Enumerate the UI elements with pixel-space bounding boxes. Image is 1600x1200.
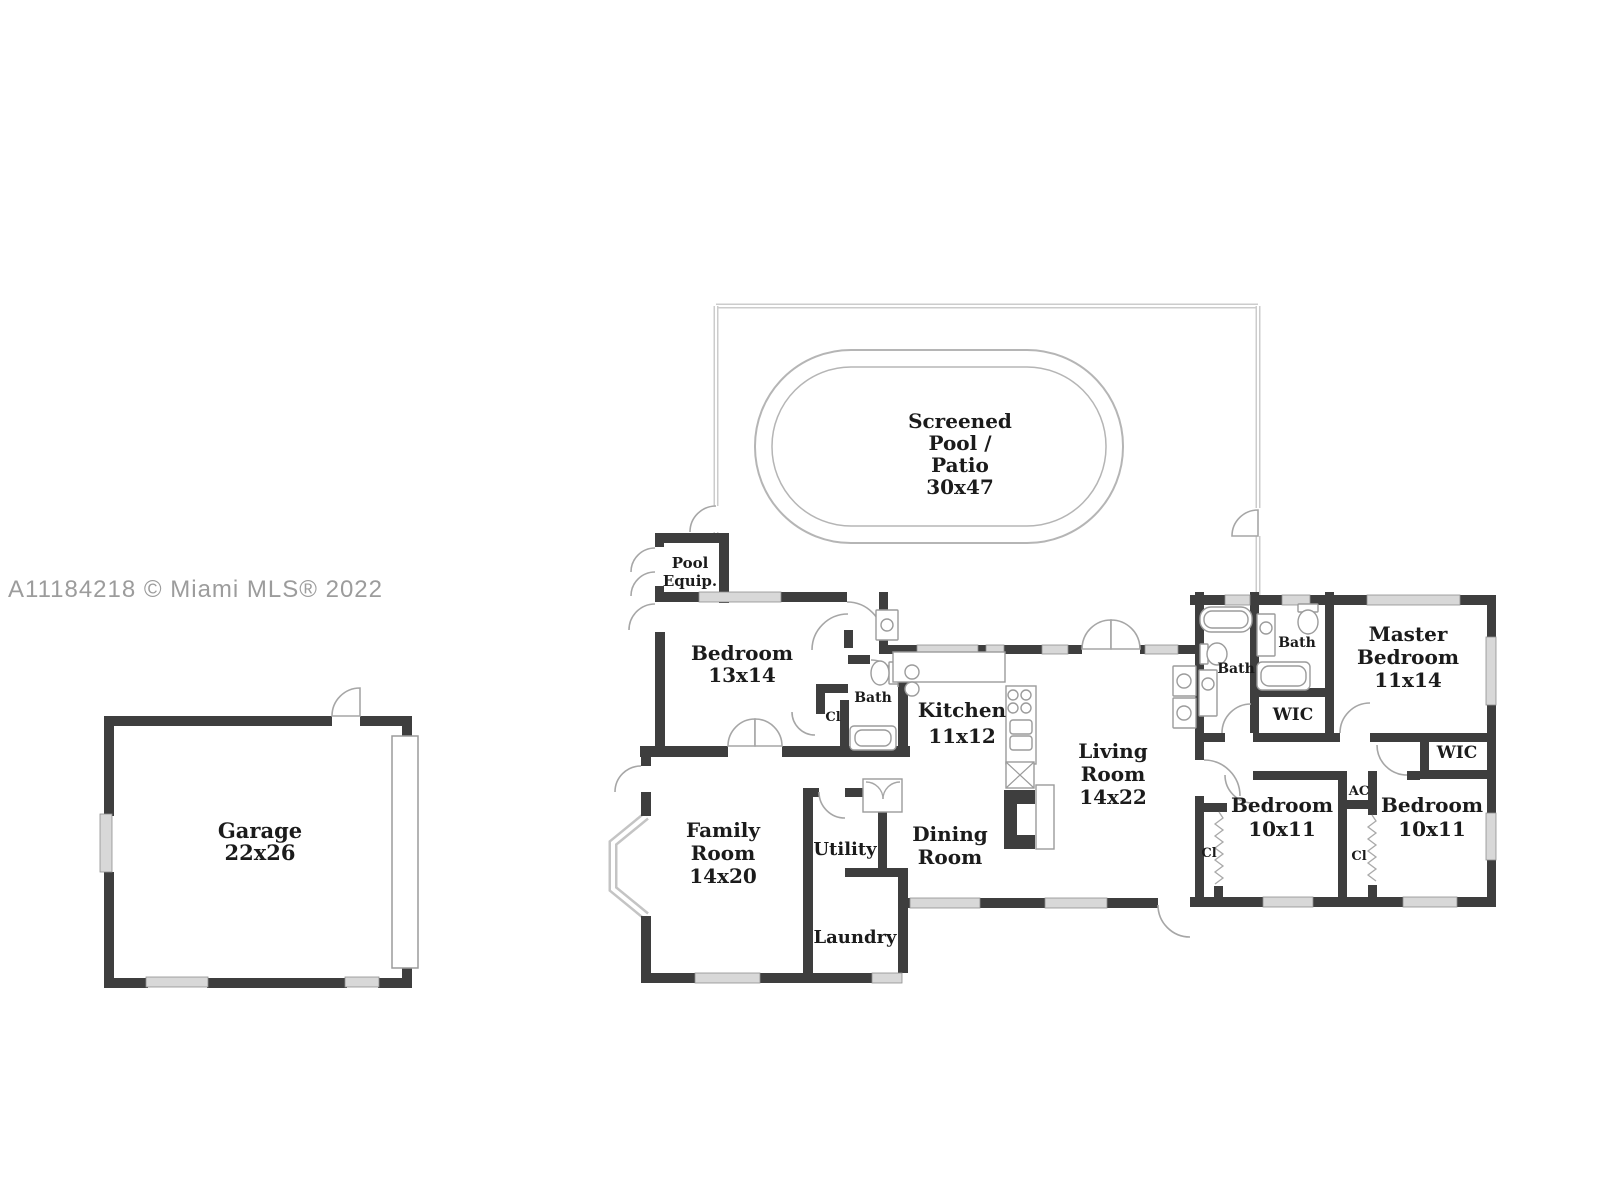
door-swing [812, 614, 848, 650]
wall-segment [1068, 645, 1082, 654]
door-swing [1111, 620, 1140, 649]
wall-segment [1190, 595, 1225, 605]
sink-basin [1010, 720, 1032, 734]
wall-segment [1338, 771, 1347, 902]
wall-segment [844, 630, 853, 648]
wall-segment [803, 788, 819, 797]
sink [1260, 622, 1272, 634]
accordion-door [1368, 815, 1376, 881]
room-label-dining-room: DiningRoom [912, 822, 988, 869]
wall-segment [1250, 697, 1259, 733]
window [1042, 645, 1068, 654]
wall-segment [898, 868, 908, 973]
wall-segment [640, 746, 728, 757]
wall-segment [1195, 733, 1225, 742]
wall-segment [641, 916, 651, 983]
bay-window [613, 816, 646, 916]
water-heater-dial [881, 619, 893, 631]
wall-segment [760, 973, 872, 983]
room-label-utility: Utility [813, 839, 877, 860]
burner [905, 665, 919, 679]
vanity [1257, 614, 1275, 656]
room-label-laundry: Laundry [813, 927, 897, 948]
wall-segment [845, 868, 907, 877]
door-swing [819, 792, 845, 818]
wall-segment [1313, 897, 1403, 907]
door-swing [1340, 703, 1370, 733]
door-swing [631, 548, 655, 572]
door-swing [755, 719, 782, 746]
window [1367, 595, 1460, 605]
door-swing [1377, 745, 1407, 775]
wall-segment [207, 978, 347, 988]
window [1045, 898, 1107, 908]
window [1486, 637, 1496, 705]
door-swing [1158, 905, 1190, 937]
wall-segment [845, 788, 863, 797]
room-label-bedroom-13x14: Bedroom13x14 [691, 641, 793, 687]
wall-segment [378, 978, 412, 988]
wall-segment [1487, 705, 1496, 813]
bathtub-inner [855, 730, 891, 746]
room-label-master-bedroom: MasterBedroom11x14 [1357, 622, 1459, 692]
windows [100, 592, 1496, 987]
bay-window-glass [613, 816, 646, 916]
room-label-bedroom-right: Bedroom10x11 [1381, 793, 1483, 841]
door-swing [792, 712, 815, 735]
wall-segment [1407, 771, 1420, 780]
wall-segment [641, 973, 695, 983]
burner [905, 682, 919, 696]
door-swing [332, 688, 360, 716]
wall-segment [816, 684, 825, 714]
wall-segment [803, 790, 813, 975]
room-label-wic-master: WIC [1272, 705, 1314, 725]
burner [1008, 703, 1018, 713]
wall-segment [848, 655, 870, 664]
bathtub-inner [1261, 666, 1306, 686]
wall-segment [655, 533, 664, 547]
garage-door [392, 736, 418, 968]
wall-segment [1004, 645, 1042, 654]
wall-segment [1202, 803, 1227, 812]
door-swing [615, 766, 641, 792]
door-swing [690, 506, 716, 532]
wall-segment [641, 792, 651, 816]
wall-segment [1107, 898, 1158, 908]
mls-watermark: A11184218 © Miami MLS® 2022 [8, 576, 383, 604]
room-label-closet-right: Cl [1351, 849, 1366, 864]
wall-segment [1420, 770, 1496, 779]
floor-plan-page: ScreenedPool /Patio30x47PoolEquip.Bedroo… [0, 0, 1600, 1200]
window [1145, 645, 1178, 654]
door-swing [728, 719, 755, 746]
wall-segment [655, 632, 665, 746]
room-label-family-room: FamilyRoom14x20 [686, 818, 761, 888]
room-label-closet-bedroom: Cl [825, 710, 840, 725]
toilet [1298, 610, 1318, 634]
window [345, 977, 379, 987]
vanity [1199, 670, 1217, 716]
window [910, 898, 980, 908]
wall-segment [104, 716, 114, 816]
room-label-kitchen: Kitchen11x12 [918, 698, 1007, 748]
burner [1008, 690, 1018, 700]
wall-segment [655, 533, 729, 543]
wall-segment [840, 700, 849, 746]
wall-segment [1457, 897, 1496, 907]
room-label-wic-right: WIC [1436, 743, 1478, 763]
room-label-bedroom-left: Bedroom10x11 [1231, 793, 1333, 841]
window [699, 592, 781, 602]
window [146, 977, 208, 987]
fireplace [1004, 790, 1035, 849]
wall-segment [1370, 733, 1496, 742]
room-label-pool-equip: PoolEquip. [663, 554, 717, 590]
door-swing [1082, 620, 1111, 649]
wall-segment [104, 716, 332, 726]
room-label-ac: AC [1348, 784, 1369, 799]
wall-segment [1253, 771, 1343, 780]
wall-segment [1250, 595, 1282, 605]
room-label-screened-pool-patio: ScreenedPool /Patio30x47 [908, 409, 1012, 499]
room-label-bath-hall: Bath [854, 690, 892, 706]
window [1486, 813, 1496, 860]
door-swing [631, 572, 655, 596]
wall-segment [104, 872, 114, 988]
wall-segment [980, 898, 1045, 908]
room-label-bath-2: Bath [1278, 635, 1316, 651]
window [872, 973, 902, 983]
wall-segment [1325, 592, 1334, 742]
wall-segment [104, 978, 148, 988]
wall-segment [641, 746, 651, 766]
toilet [871, 661, 889, 685]
bathtub-inner [1204, 611, 1248, 628]
wall-segment [1190, 897, 1263, 907]
window [695, 973, 760, 983]
window [100, 814, 112, 872]
window [1263, 897, 1313, 907]
wall-segment [1338, 800, 1377, 809]
wall-segment [655, 592, 699, 602]
dryer-door [1177, 706, 1191, 720]
wall-segment [1310, 595, 1367, 605]
fireplace-hearth [1036, 785, 1054, 849]
room-label-garage: Garage22x26 [218, 818, 302, 865]
burner [1021, 703, 1031, 713]
window [1225, 595, 1250, 605]
door-swing [1204, 760, 1240, 796]
window [1403, 897, 1457, 907]
wall-segment [1487, 595, 1496, 637]
room-label-closet-left: Cl [1201, 846, 1216, 861]
room-label-living-room: LivingRoom14x22 [1078, 739, 1147, 809]
sink [1202, 678, 1214, 690]
burner [1021, 690, 1031, 700]
door-swing [629, 604, 655, 630]
room-label-bath-1: Bath [1217, 661, 1255, 677]
sink-basin [1010, 736, 1032, 750]
door-swing [1222, 704, 1251, 733]
washer-door [1177, 674, 1191, 688]
door-swing [1232, 510, 1258, 536]
wall-segment [781, 592, 847, 602]
